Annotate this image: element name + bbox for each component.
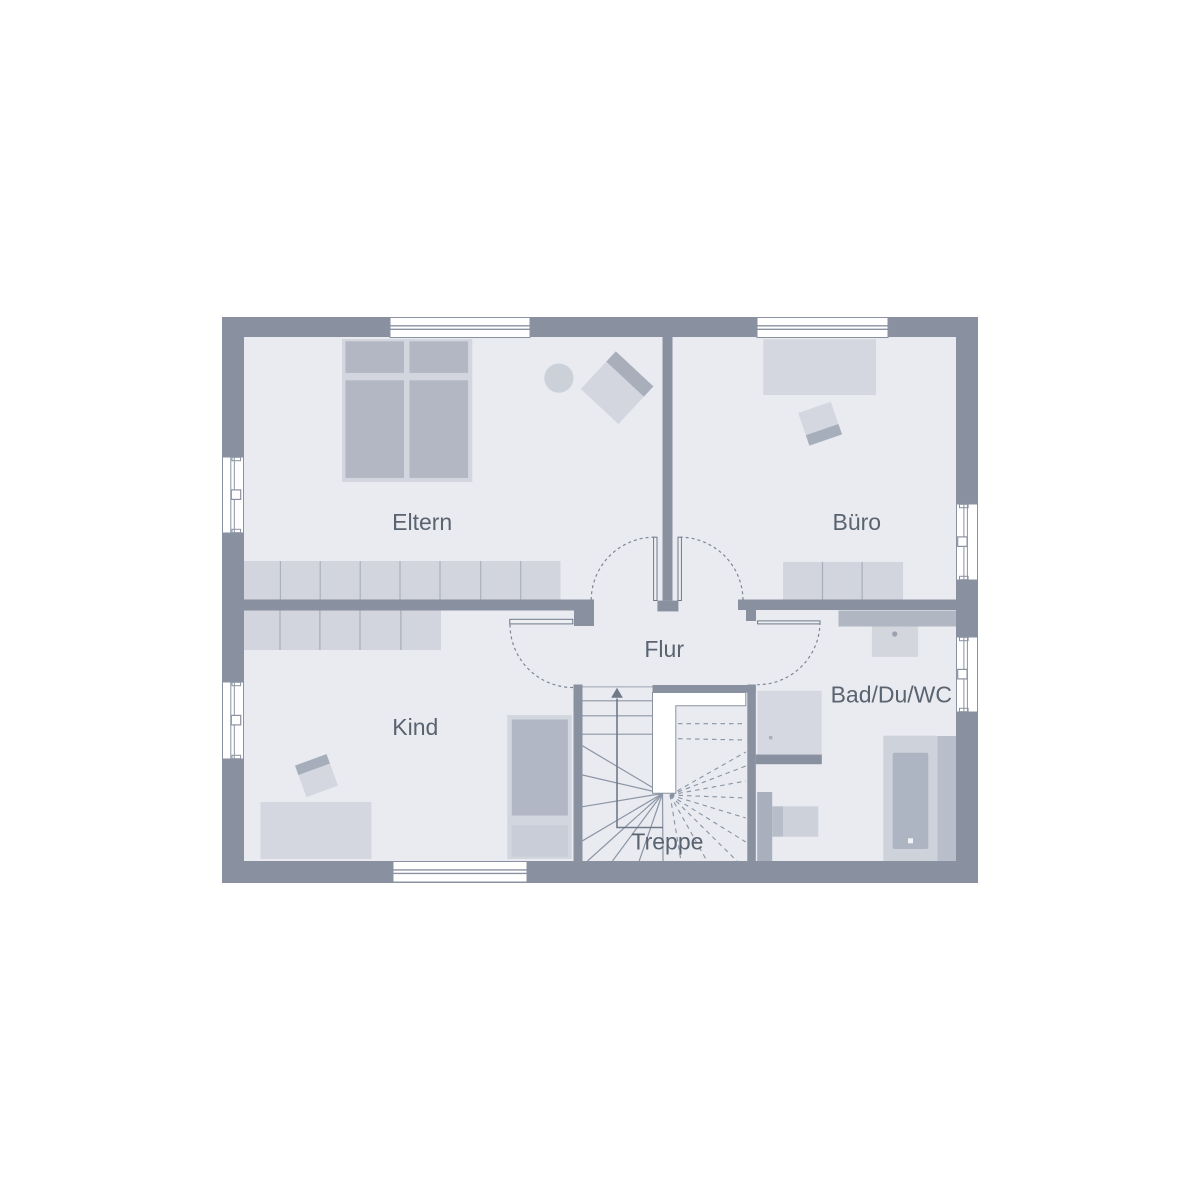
svg-text:Flur: Flur	[644, 636, 684, 662]
svg-text:Kind: Kind	[392, 714, 438, 740]
svg-text:Treppe: Treppe	[631, 829, 703, 855]
svg-text:Büro: Büro	[833, 509, 882, 535]
svg-text:Bad/Du/WC: Bad/Du/WC	[831, 682, 952, 708]
svg-text:Eltern: Eltern	[392, 509, 452, 535]
